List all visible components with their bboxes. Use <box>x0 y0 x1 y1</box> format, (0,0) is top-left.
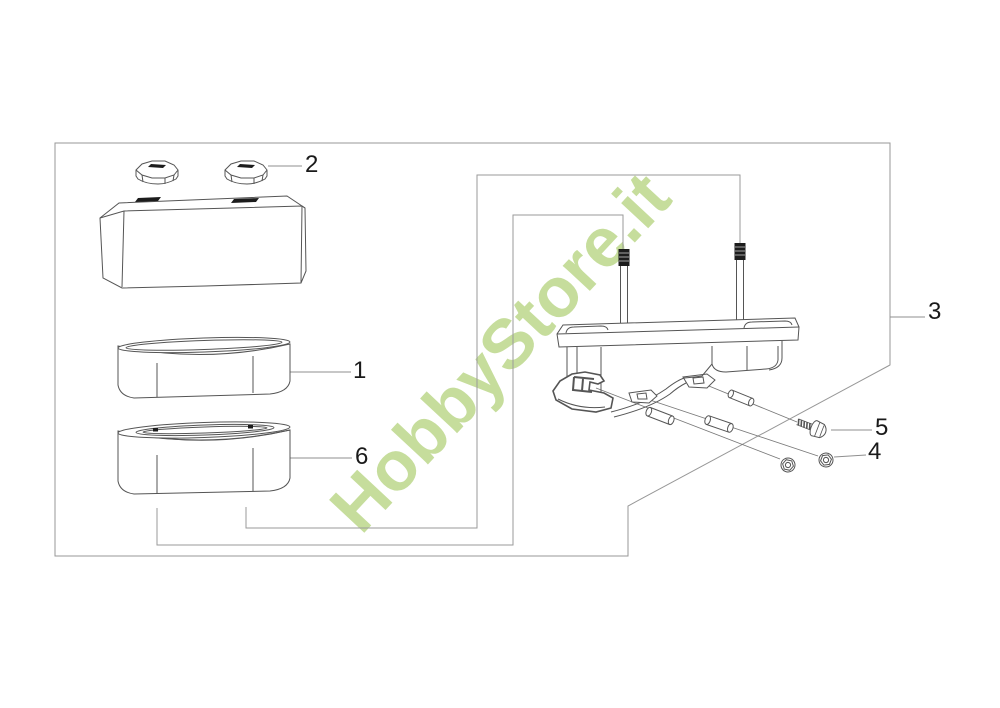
nuts-drawing <box>780 452 834 473</box>
nut-left <box>780 457 797 474</box>
intake-bracket-drawing <box>553 243 799 417</box>
callout-leader-lines <box>268 166 925 458</box>
stud-right <box>735 243 746 327</box>
bracket-plate <box>557 318 799 347</box>
callout-label-1: 1 <box>353 359 366 383</box>
wing-nut-left <box>136 161 178 184</box>
wing-nut-right <box>225 161 267 184</box>
wing-nuts-drawing <box>136 161 267 184</box>
callout-label-3: 3 <box>928 300 941 324</box>
leader-4 <box>834 455 866 457</box>
callout-label-4: 4 <box>868 440 881 464</box>
exploded-parts-diagram: HobbyStore.it <box>0 0 1000 708</box>
filter-element-1-drawing <box>118 335 290 398</box>
filter-element-6-drawing <box>118 420 290 494</box>
filter-cover-drawing <box>100 196 306 288</box>
spacer-1 <box>645 407 675 426</box>
callout-label-5: 5 <box>875 416 888 440</box>
spacer-3 <box>727 389 755 406</box>
nut-right <box>818 452 834 468</box>
callout-label-2: 2 <box>305 153 318 177</box>
stud-left <box>619 249 630 330</box>
callout-label-6: 6 <box>355 445 368 469</box>
diagram-drawing <box>0 0 1000 708</box>
spacer-2 <box>704 415 735 433</box>
spacer-sleeves-drawing <box>645 389 755 433</box>
bolt-drawing <box>795 414 829 440</box>
